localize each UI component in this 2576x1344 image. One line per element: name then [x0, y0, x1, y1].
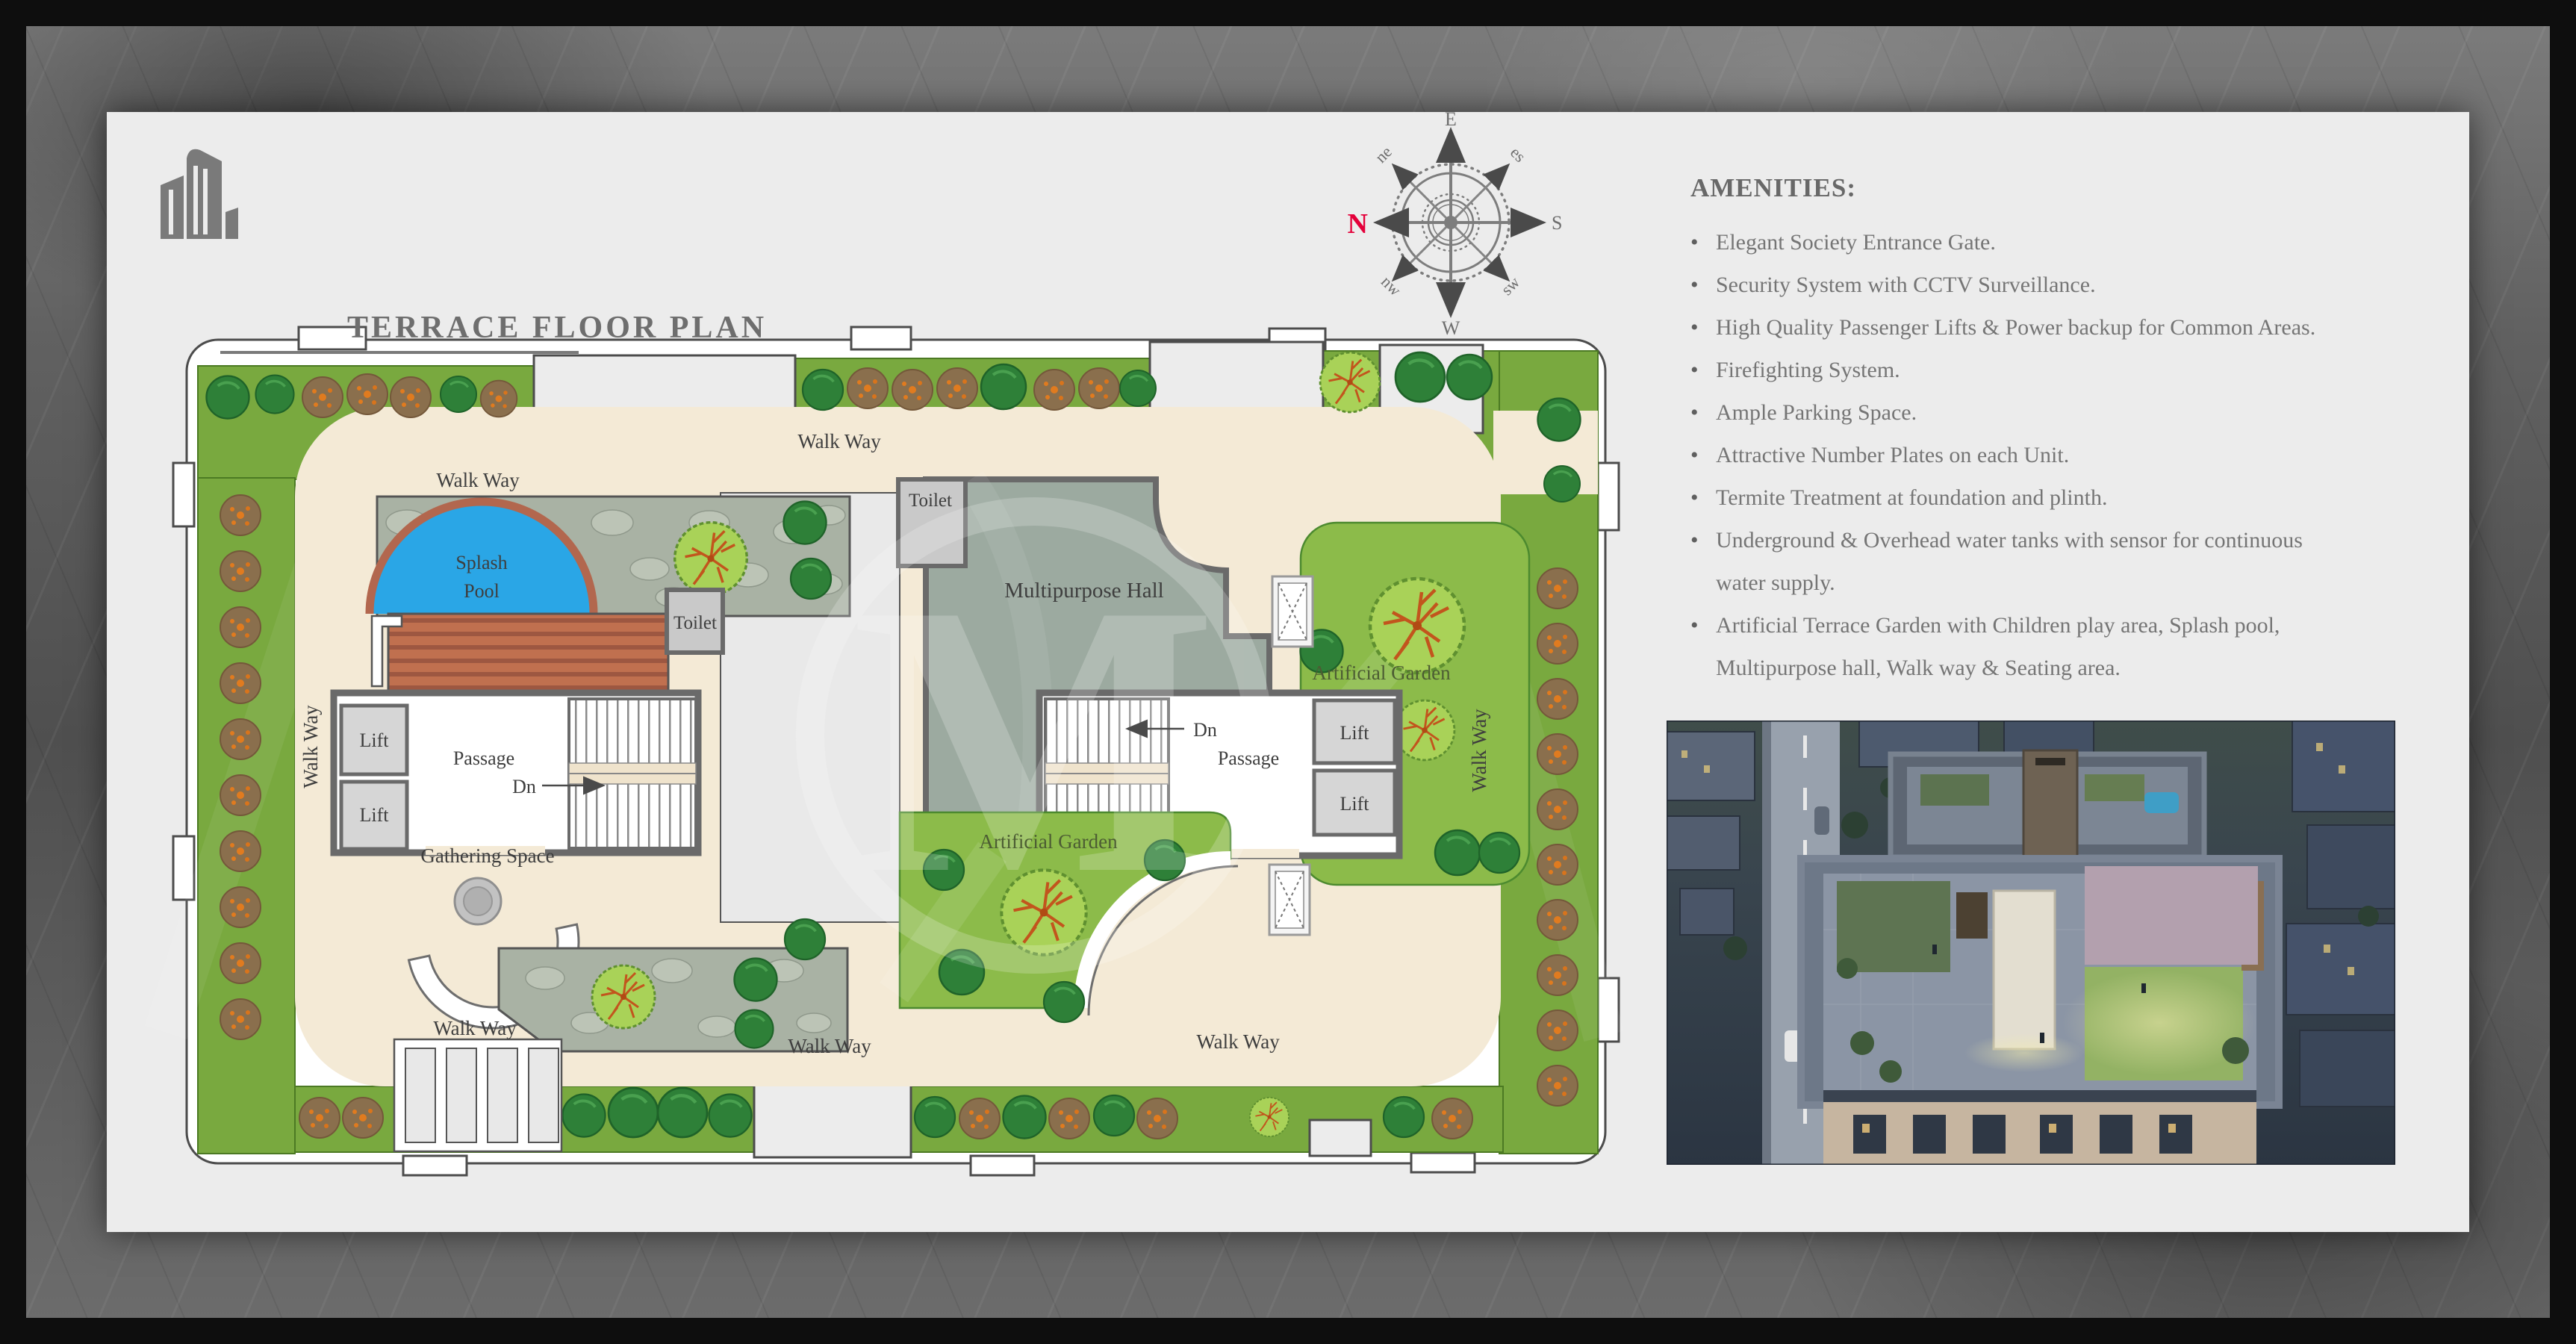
- amenity-item: •Ample Parking Space.: [1690, 391, 2392, 434]
- terrace-photo: [1667, 721, 2395, 1165]
- walkway-label-top-left: Walk Way: [436, 469, 520, 491]
- amenity-item: •Underground & Overhead water tanks with…: [1690, 519, 2392, 561]
- compass-label-e: E: [1445, 108, 1457, 130]
- passage-label-1: Passage: [453, 747, 514, 769]
- amenities-section: AMENITIES: •Elegant Society Entrance Gat…: [1690, 173, 2392, 689]
- lift-label-3: Lift: [1340, 722, 1370, 744]
- compass-label-ne: ne: [1372, 143, 1396, 167]
- multipurpose-hall-label: Multipurpose Hall: [1004, 579, 1163, 603]
- compass-label-w: W: [1442, 317, 1460, 339]
- amenity-item: Multipurpose hall, Walk way & Seating ar…: [1690, 647, 2392, 689]
- amenity-item: •Elegant Society Entrance Gate.: [1690, 221, 2392, 264]
- dn-label-1: Dn: [512, 776, 536, 797]
- splash-pool-label-1: Splash: [455, 552, 507, 573]
- compass-label-s: S: [1552, 212, 1562, 234]
- walkway-label-left: Walk Way: [299, 705, 322, 788]
- title-underline: [220, 351, 579, 354]
- buildings-logo-icon: [161, 149, 238, 239]
- artificial-garden-label-right: Artificial Garden: [1312, 662, 1451, 684]
- lift-label-4: Lift: [1340, 793, 1370, 815]
- left-core: [334, 693, 698, 855]
- compass-label-sw: sw: [1497, 273, 1523, 299]
- walkway-label-right: Walk Way: [1468, 709, 1490, 792]
- compass-rose: E S W ne es sw nw N: [1348, 108, 1563, 339]
- rear-tower: [2023, 750, 2077, 857]
- walkway-label-bottom-right: Walk Way: [1196, 1030, 1280, 1053]
- artificial-garden-label-lower: Artificial Garden: [979, 830, 1118, 853]
- main-terrace: [1801, 859, 2279, 1105]
- floor-plan: M Walk Way Walk Way Walk Way Walk Way Wa…: [144, 327, 1623, 1175]
- amenities-heading: AMENITIES:: [1690, 173, 2392, 203]
- amenity-item: water supply.: [1690, 561, 2392, 604]
- amenity-item: •Termite Treatment at foundation and pli…: [1690, 476, 2392, 519]
- seating-benches: [394, 1039, 561, 1151]
- splash-pool-label-2: Pool: [464, 580, 500, 602]
- rear-terrace: [1891, 750, 2204, 857]
- pink-roof: [2085, 866, 2258, 965]
- passage-label-2: Passage: [1218, 747, 1279, 769]
- front-facade: [1823, 1090, 2256, 1165]
- car: [1814, 806, 1829, 835]
- compass-label-nw: nw: [1378, 272, 1405, 299]
- wooden-deck: [388, 614, 668, 698]
- walkway-label-top-center: Walk Way: [797, 430, 881, 452]
- lift-label-2: Lift: [360, 804, 390, 826]
- gathering-space-label: Gathering Space: [420, 844, 554, 867]
- amenity-item: •Security System with CCTV Surveillance.: [1690, 264, 2392, 306]
- amenity-item: •High Quality Passenger Lifts & Power ba…: [1690, 306, 2392, 349]
- dn-label-2: Dn: [1193, 719, 1217, 741]
- walkway-label-bottom-left: Walk Way: [433, 1017, 517, 1039]
- lift-label-1: Lift: [360, 729, 390, 751]
- rooftop-pool: [2144, 792, 2179, 813]
- lit-tower: [1994, 891, 2055, 1049]
- toilet-label-2: Toilet: [909, 491, 952, 511]
- amenity-item: •Firefighting System.: [1690, 349, 2392, 391]
- toilet-label-1: Toilet: [673, 613, 717, 633]
- amenity-item: •Artificial Terrace Garden with Children…: [1690, 604, 2392, 647]
- walkway-label-bottom-center: Walk Way: [788, 1035, 871, 1057]
- compass-label-es: es: [1507, 143, 1530, 166]
- page-title: TERRACE FLOOR PLAN: [347, 310, 767, 346]
- compass-label-n: N: [1348, 208, 1368, 240]
- planter-box-1: [1272, 576, 1313, 647]
- planter-box-2: [1269, 865, 1310, 935]
- amenity-item: •Attractive Number Plates on each Unit.: [1690, 434, 2392, 476]
- brochure-page: E S W ne es sw nw N: [0, 0, 2576, 1344]
